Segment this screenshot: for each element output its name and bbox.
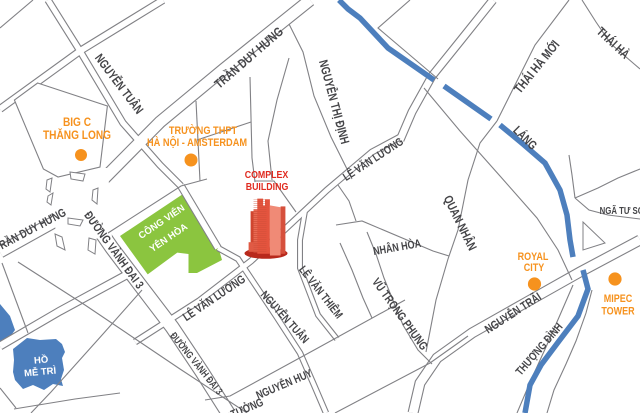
svg-text:COMPLEX: COMPLEX	[245, 169, 289, 181]
svg-text:BIG C: BIG C	[63, 116, 91, 129]
svg-text:TOWER: TOWER	[601, 306, 635, 318]
svg-text:HỒ: HỒ	[33, 353, 48, 366]
svg-text:MIPEC: MIPEC	[604, 293, 633, 305]
svg-text:CITY: CITY	[524, 262, 545, 274]
svg-text:NGÃ TƯ SỞ: NGÃ TƯ SỞ	[600, 204, 640, 216]
svg-text:HÀ NỘI - AMSTERDAM: HÀ NỘI - AMSTERDAM	[147, 135, 247, 149]
svg-text:TRƯỜNG THPT: TRƯỜNG THPT	[169, 123, 238, 137]
svg-text:BUILDING: BUILDING	[246, 181, 289, 193]
svg-text:THĂNG LONG: THĂNG LONG	[43, 128, 111, 142]
